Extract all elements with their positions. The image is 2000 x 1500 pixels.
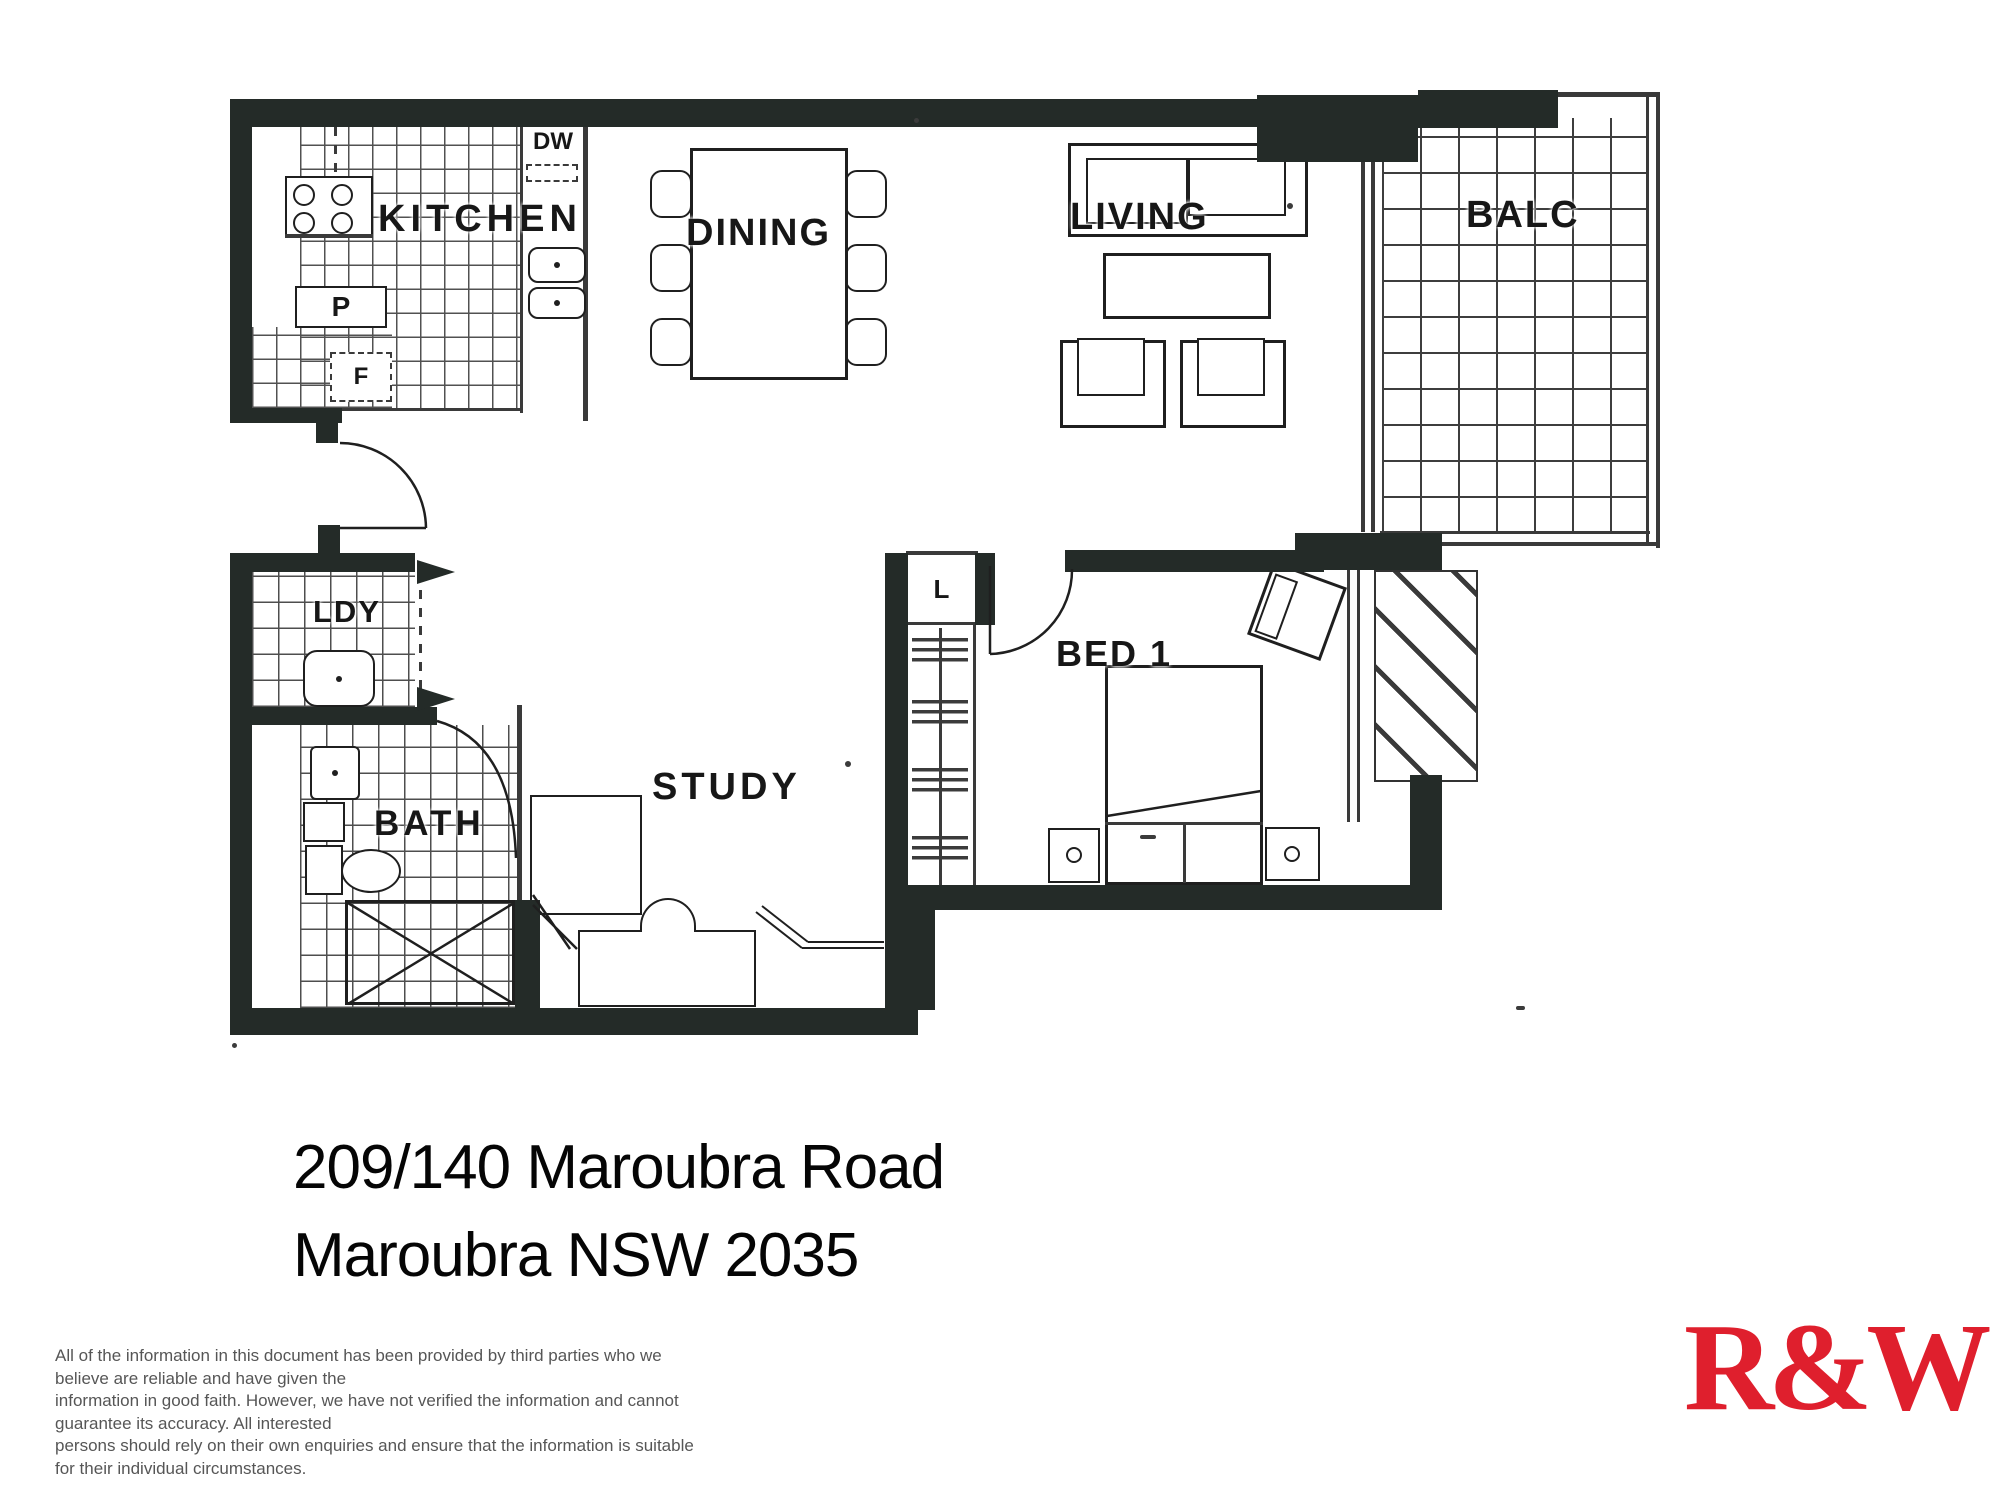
tub-drain <box>336 676 342 682</box>
room-label-laundry: LDY <box>313 596 381 627</box>
entry-door-arc <box>340 443 426 528</box>
entry-door-jamb <box>316 420 338 443</box>
bed1-window <box>1357 570 1360 822</box>
wall <box>1257 95 1418 162</box>
dining-table <box>690 148 848 380</box>
dishwasher <box>526 164 578 182</box>
wall <box>230 1008 918 1035</box>
stove-base <box>285 234 373 238</box>
wall <box>230 553 415 572</box>
dining-chair <box>845 244 887 292</box>
room-label-study: STUDY <box>652 768 801 806</box>
wardrobe-hangers <box>912 638 968 662</box>
desk-chair <box>640 898 696 932</box>
disclaimer: All of the information in this document … <box>55 1345 715 1480</box>
wardrobe-right-edge <box>973 625 976 887</box>
disclaimer-line-1: All of the information in this document … <box>55 1345 715 1390</box>
coffee-table <box>1103 253 1271 319</box>
bath-study-partition <box>517 705 522 910</box>
room-label-balcony: BALC <box>1466 196 1580 234</box>
pantry-label: P <box>295 286 387 328</box>
wall <box>230 99 1270 127</box>
pillow-divider <box>1183 822 1186 883</box>
bedside-lamp <box>1066 847 1082 863</box>
study-desk <box>578 930 756 1007</box>
stove-burner <box>293 212 315 234</box>
shower <box>345 900 515 1005</box>
scan-speck <box>914 118 919 123</box>
laundry-bifold-door <box>419 572 422 700</box>
address-line-1: 209/140 Maroubra Road <box>293 1124 944 1212</box>
stove-burner <box>331 212 353 234</box>
wall <box>1065 550 1324 572</box>
wall <box>1295 533 1442 570</box>
disclaimer-line-2: information in good faith. However, we h… <box>55 1390 715 1435</box>
sink-drain <box>554 300 560 306</box>
balcony-rail-right <box>1656 94 1660 548</box>
scan-speck <box>1287 203 1293 209</box>
basin-drain <box>332 770 338 776</box>
bed1-window <box>1347 570 1350 822</box>
floorplan-page: P F DW <box>0 0 2000 1500</box>
scan-speck <box>845 761 851 767</box>
wall <box>1418 90 1558 128</box>
wall <box>975 553 995 625</box>
wall <box>905 910 935 1010</box>
toilet-bowl <box>341 849 401 893</box>
bed1-window-seat <box>1374 570 1478 782</box>
balcony-floor <box>1382 118 1646 534</box>
kitchen-floor-edge-right <box>520 127 523 413</box>
bedroom-chair <box>1247 561 1347 661</box>
overhead-cupboard-line <box>334 127 337 177</box>
toilet-tank <box>305 845 343 895</box>
study-cabinet <box>530 795 642 915</box>
room-label-dining: DINING <box>686 214 831 252</box>
property-address: 209/140 Maroubra Road Maroubra NSW 2035 <box>293 1124 944 1300</box>
living-balcony-window <box>1371 128 1375 532</box>
armchair-seat <box>1077 338 1145 396</box>
dishwasher-label: DW <box>524 124 582 160</box>
scan-speck <box>232 1043 237 1048</box>
room-label-bath: BATH <box>374 806 485 841</box>
bath-cabinet <box>303 802 345 842</box>
sink-drain <box>554 262 560 268</box>
room-label-kitchen: KITCHEN <box>378 200 582 238</box>
wall <box>905 885 1442 910</box>
armchair-seat <box>1197 338 1265 396</box>
linen-label: L <box>908 555 975 623</box>
bedroom-chair-back <box>1254 573 1298 639</box>
address-line-2: Maroubra NSW 2035 <box>293 1212 944 1300</box>
dining-chair <box>845 170 887 218</box>
desk-return-lines <box>756 906 884 948</box>
room-label-living: LIVING <box>1070 198 1209 236</box>
wall <box>230 99 252 423</box>
stove-burner <box>293 184 315 206</box>
wardrobe-hangers <box>912 836 968 860</box>
wall <box>1410 775 1442 890</box>
wall <box>230 553 252 1035</box>
wardrobe-hangers <box>912 768 968 792</box>
fridge-label: F <box>330 352 392 402</box>
room-label-bed1: BED 1 <box>1056 636 1172 672</box>
scan-speck <box>1140 835 1156 839</box>
bedside-lamp <box>1284 846 1300 862</box>
stove-burner <box>331 184 353 206</box>
wall <box>250 707 437 725</box>
wardrobe-hangers <box>912 700 968 724</box>
dining-chair <box>650 318 692 366</box>
bifold-arrow <box>417 560 455 584</box>
scan-speck <box>1516 1006 1525 1010</box>
balcony-rail-right <box>1646 96 1649 546</box>
dining-chair <box>650 170 692 218</box>
balcony-top-edge <box>1558 92 1660 97</box>
agency-logo: R&W <box>1684 1306 1985 1431</box>
living-balcony-window <box>1361 128 1365 532</box>
entry-door-jamb <box>318 525 340 555</box>
disclaimer-line-3: persons should rely on their own enquiri… <box>55 1435 715 1480</box>
dining-chair <box>845 318 887 366</box>
